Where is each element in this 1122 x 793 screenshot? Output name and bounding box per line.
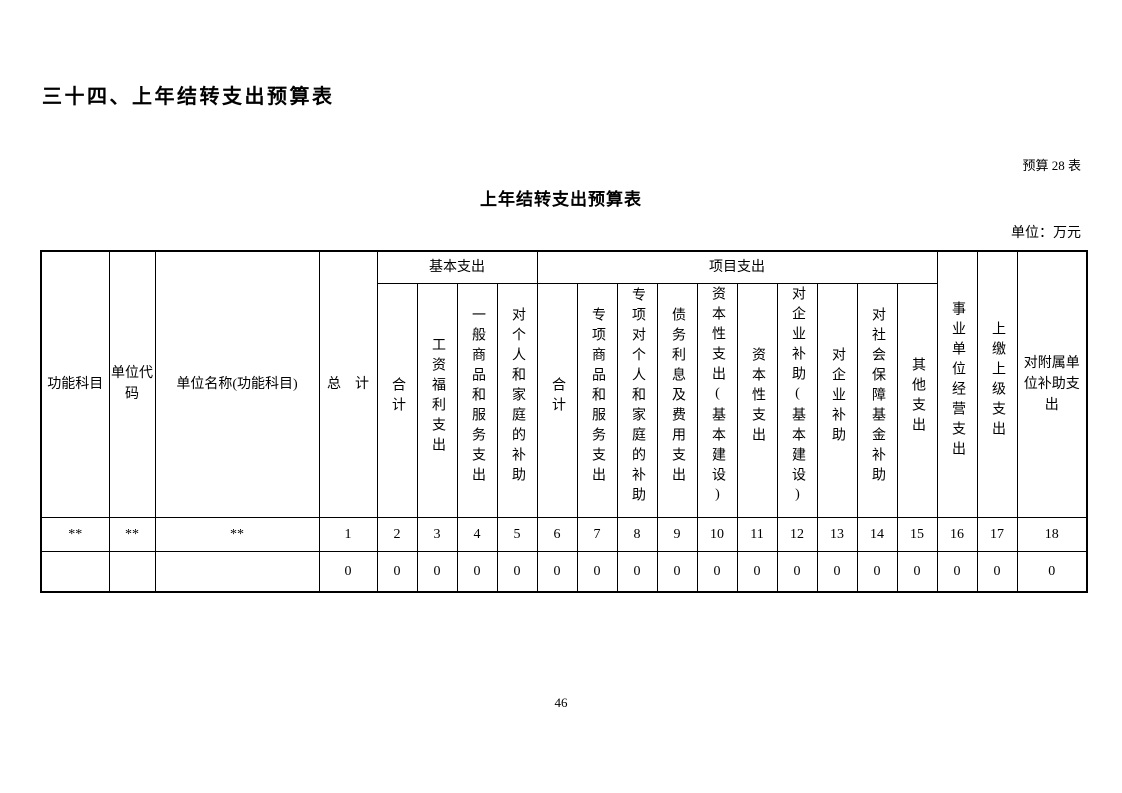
- sub-header-1-1-label: 专项商品和服务支出: [590, 307, 604, 487]
- number-cell-1: **: [109, 517, 155, 551]
- value-cell-4: 0: [377, 551, 417, 592]
- right-header-1-label: 上缴上级支出: [990, 321, 1004, 441]
- unit-label: 单位：万元: [1011, 222, 1081, 242]
- sub-header-1-8: 对社会保障基金补助: [857, 283, 897, 517]
- value-cell-2: [155, 551, 319, 592]
- value-cell-0: [41, 551, 109, 592]
- right-header-1: 上缴上级支出: [977, 251, 1017, 517]
- sub-header-1-4: 资本性支出(基本建设): [697, 283, 737, 517]
- sub-header-1-2: 专项对个人和家庭的补助: [617, 283, 657, 517]
- value-cell-18: 0: [937, 551, 977, 592]
- right-header-0: 事业单位经营支出: [937, 251, 977, 517]
- data-row: 000000000000000000: [41, 551, 1087, 592]
- number-cell-9: 7: [577, 517, 617, 551]
- sub-header-1-1: 专项商品和服务支出: [577, 283, 617, 517]
- sub-header-1-0-label: 合计: [550, 377, 564, 417]
- table-number-label: 预算 28 表: [1022, 155, 1081, 174]
- sub-header-1-4-label: 资本性支出(基本建设): [710, 286, 724, 508]
- sub-header-1-3-label: 债务利息及费用支出: [670, 307, 684, 487]
- value-cell-20: 0: [1017, 551, 1087, 592]
- sub-header-0-2-label: 一般商品和服务支出: [470, 307, 484, 487]
- left-header-2: 单位名称(功能科目): [155, 251, 319, 517]
- number-cell-3: 1: [319, 517, 377, 551]
- sub-header-0-0-label: 合计: [390, 377, 404, 417]
- sub-header-0-3-label: 对个人和家庭的补助: [510, 307, 524, 487]
- left-header-1: 单位代码: [109, 251, 155, 517]
- sub-header-1-8-label: 对社会保障基金补助: [870, 307, 884, 487]
- page-number: 46: [0, 695, 1122, 711]
- number-cell-4: 2: [377, 517, 417, 551]
- value-cell-16: 0: [857, 551, 897, 592]
- sub-header-1-6: 对企业补助(基本建设): [777, 283, 817, 517]
- value-cell-15: 0: [817, 551, 857, 592]
- number-cell-19: 17: [977, 517, 1017, 551]
- sub-header-0-2: 一般商品和服务支出: [457, 283, 497, 517]
- value-cell-7: 0: [497, 551, 537, 592]
- sub-header-1-9-label: 其他支出: [910, 357, 924, 437]
- number-cell-8: 6: [537, 517, 577, 551]
- sub-header-0-1: 工资福利支出: [417, 283, 457, 517]
- value-cell-10: 0: [617, 551, 657, 592]
- value-cell-17: 0: [897, 551, 937, 592]
- number-cell-13: 11: [737, 517, 777, 551]
- value-cell-12: 0: [697, 551, 737, 592]
- value-cell-9: 0: [577, 551, 617, 592]
- value-cell-13: 0: [737, 551, 777, 592]
- number-cell-7: 5: [497, 517, 537, 551]
- document-page: 三十四、上年结转支出预算表 预算 28 表 上年结转支出预算表 单位：万元 功能…: [0, 0, 1122, 793]
- group-header-1: 项目支出: [537, 251, 937, 283]
- number-cell-0: **: [41, 517, 109, 551]
- value-cell-1: [109, 551, 155, 592]
- table-title: 上年结转支出预算表: [0, 185, 1122, 210]
- number-cell-10: 8: [617, 517, 657, 551]
- number-cell-20: 18: [1017, 517, 1087, 551]
- number-cell-18: 16: [937, 517, 977, 551]
- right-header-2: 对附属单位补助支出: [1017, 251, 1087, 517]
- sub-header-1-5: 资本性支出: [737, 283, 777, 517]
- right-header-0-label: 事业单位经营支出: [950, 301, 964, 461]
- header-row-groups: 功能科目单位代码单位名称(功能科目)总 计基本支出项目支出事业单位经营支出上缴上…: [41, 251, 1087, 283]
- number-cell-12: 10: [697, 517, 737, 551]
- number-cell-6: 4: [457, 517, 497, 551]
- left-header-3: 总 计: [319, 251, 377, 517]
- value-cell-14: 0: [777, 551, 817, 592]
- sub-header-0-0: 合计: [377, 283, 417, 517]
- sub-header-1-3: 债务利息及费用支出: [657, 283, 697, 517]
- section-heading: 三十四、上年结转支出预算表: [42, 80, 335, 109]
- value-cell-19: 0: [977, 551, 1017, 592]
- number-cell-2: **: [155, 517, 319, 551]
- number-cell-16: 14: [857, 517, 897, 551]
- column-numbering-row: ******123456789101112131415161718: [41, 517, 1087, 551]
- sub-header-1-9: 其他支出: [897, 283, 937, 517]
- left-header-0: 功能科目: [41, 251, 109, 517]
- value-cell-3: 0: [319, 551, 377, 592]
- sub-header-0-1-label: 工资福利支出: [430, 337, 444, 457]
- sub-header-1-5-label: 资本性支出: [750, 347, 764, 447]
- number-cell-14: 12: [777, 517, 817, 551]
- budget-table: 功能科目单位代码单位名称(功能科目)总 计基本支出项目支出事业单位经营支出上缴上…: [40, 250, 1088, 593]
- value-cell-5: 0: [417, 551, 457, 592]
- value-cell-11: 0: [657, 551, 697, 592]
- number-cell-5: 3: [417, 517, 457, 551]
- number-cell-17: 15: [897, 517, 937, 551]
- sub-header-1-6-label: 对企业补助(基本建设): [790, 286, 804, 508]
- sub-header-1-7: 对企业补助: [817, 283, 857, 517]
- sub-header-1-0: 合计: [537, 283, 577, 517]
- value-cell-8: 0: [537, 551, 577, 592]
- sub-header-0-3: 对个人和家庭的补助: [497, 283, 537, 517]
- number-cell-11: 9: [657, 517, 697, 551]
- number-cell-15: 13: [817, 517, 857, 551]
- group-header-0: 基本支出: [377, 251, 537, 283]
- sub-header-1-2-label: 专项对个人和家庭的补助: [630, 287, 644, 507]
- sub-header-1-7-label: 对企业补助: [830, 347, 844, 447]
- value-cell-6: 0: [457, 551, 497, 592]
